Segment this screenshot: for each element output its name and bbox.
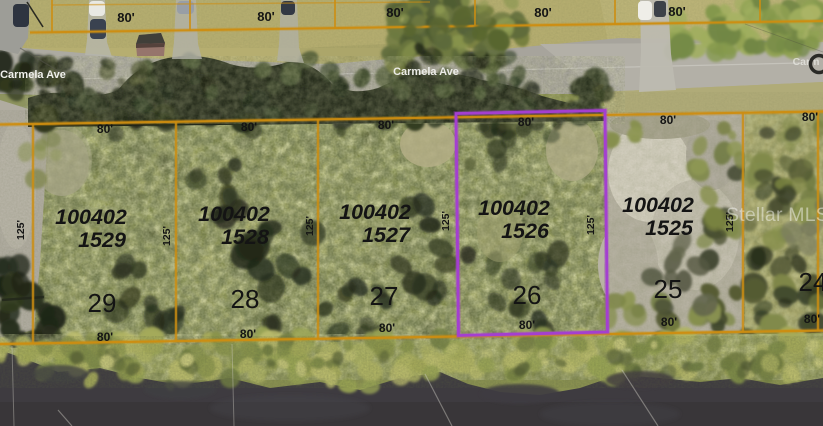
svg-text:1527: 1527 — [362, 223, 411, 247]
svg-text:80': 80' — [660, 113, 676, 127]
svg-text:80': 80' — [519, 318, 535, 332]
svg-text:80': 80' — [386, 5, 404, 20]
svg-text:80': 80' — [804, 312, 820, 326]
svg-text:Stellar MLS: Stellar MLS — [726, 204, 823, 226]
svg-text:100402: 100402 — [478, 196, 550, 220]
svg-text:80': 80' — [257, 9, 275, 24]
svg-text:29: 29 — [88, 288, 117, 318]
svg-text:125': 125' — [304, 216, 316, 236]
svg-text:80': 80' — [668, 4, 686, 19]
svg-text:80': 80' — [117, 10, 135, 25]
svg-text:80': 80' — [802, 110, 818, 124]
svg-text:1529: 1529 — [78, 228, 126, 252]
svg-text:80': 80' — [97, 330, 113, 344]
svg-text:1526: 1526 — [501, 219, 550, 243]
svg-text:80': 80' — [661, 315, 677, 329]
svg-text:125': 125' — [585, 215, 597, 235]
svg-text:80': 80' — [518, 115, 534, 129]
svg-text:125': 125' — [161, 226, 173, 246]
svg-text:100402: 100402 — [198, 202, 270, 226]
svg-text:1528: 1528 — [221, 225, 269, 249]
svg-text:100402: 100402 — [622, 193, 694, 217]
svg-text:Carmela Ave: Carmela Ave — [393, 66, 459, 78]
svg-text:80': 80' — [379, 321, 395, 335]
svg-text:80': 80' — [378, 118, 394, 132]
svg-text:80': 80' — [97, 122, 113, 136]
svg-text:28: 28 — [231, 284, 260, 314]
svg-text:100402: 100402 — [339, 200, 411, 224]
svg-text:27: 27 — [370, 281, 399, 311]
svg-text:80': 80' — [534, 5, 552, 20]
svg-text:125': 125' — [15, 220, 27, 240]
svg-text:26: 26 — [513, 280, 542, 310]
svg-text:125': 125' — [440, 211, 452, 231]
svg-text:80': 80' — [240, 327, 256, 341]
svg-text:Carmela Ave: Carmela Ave — [0, 69, 66, 81]
svg-text:100402: 100402 — [55, 205, 127, 229]
svg-text:1525: 1525 — [645, 216, 694, 240]
svg-text:25: 25 — [654, 274, 683, 304]
svg-text:24: 24 — [799, 267, 823, 297]
svg-text:80': 80' — [241, 120, 257, 134]
